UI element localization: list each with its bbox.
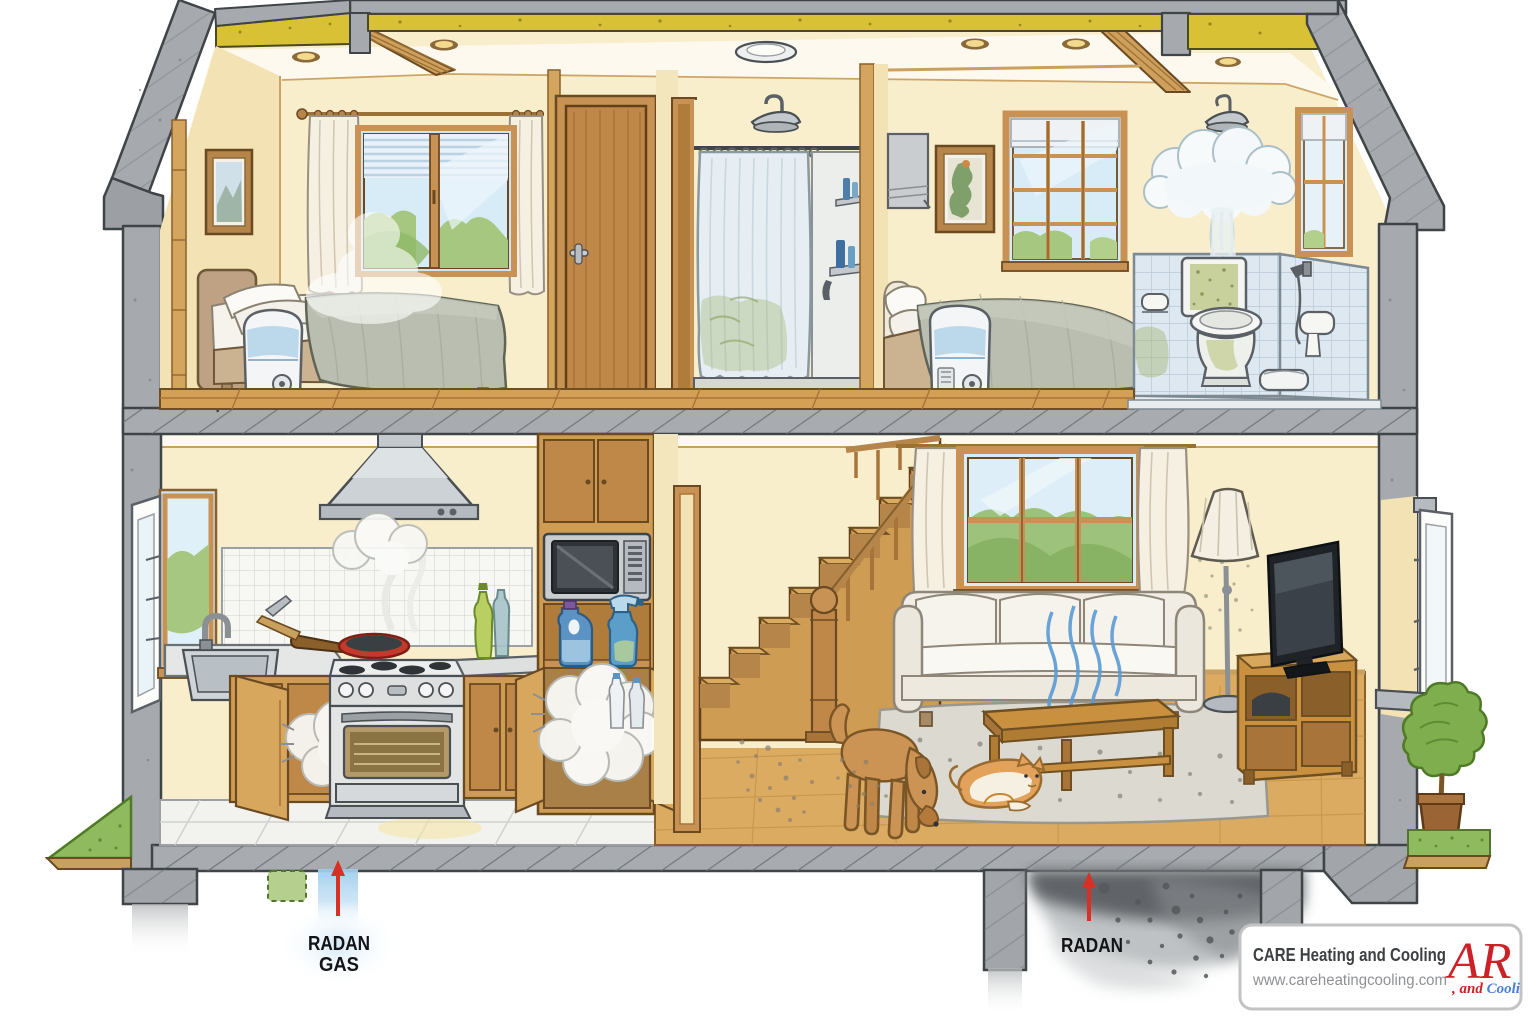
- svg-text:RADAN: RADAN: [1061, 935, 1123, 957]
- svg-text:RADAN: RADAN: [308, 933, 370, 955]
- svg-text:CARE Heating and Cooling: CARE Heating and Cooling: [1253, 945, 1446, 965]
- svg-text:, and Cooli: , and Cooli: [1451, 981, 1521, 997]
- svg-text:GAS: GAS: [319, 954, 359, 976]
- svg-text:www.careheatingcooling.com: www.careheatingcooling.com: [1252, 972, 1447, 989]
